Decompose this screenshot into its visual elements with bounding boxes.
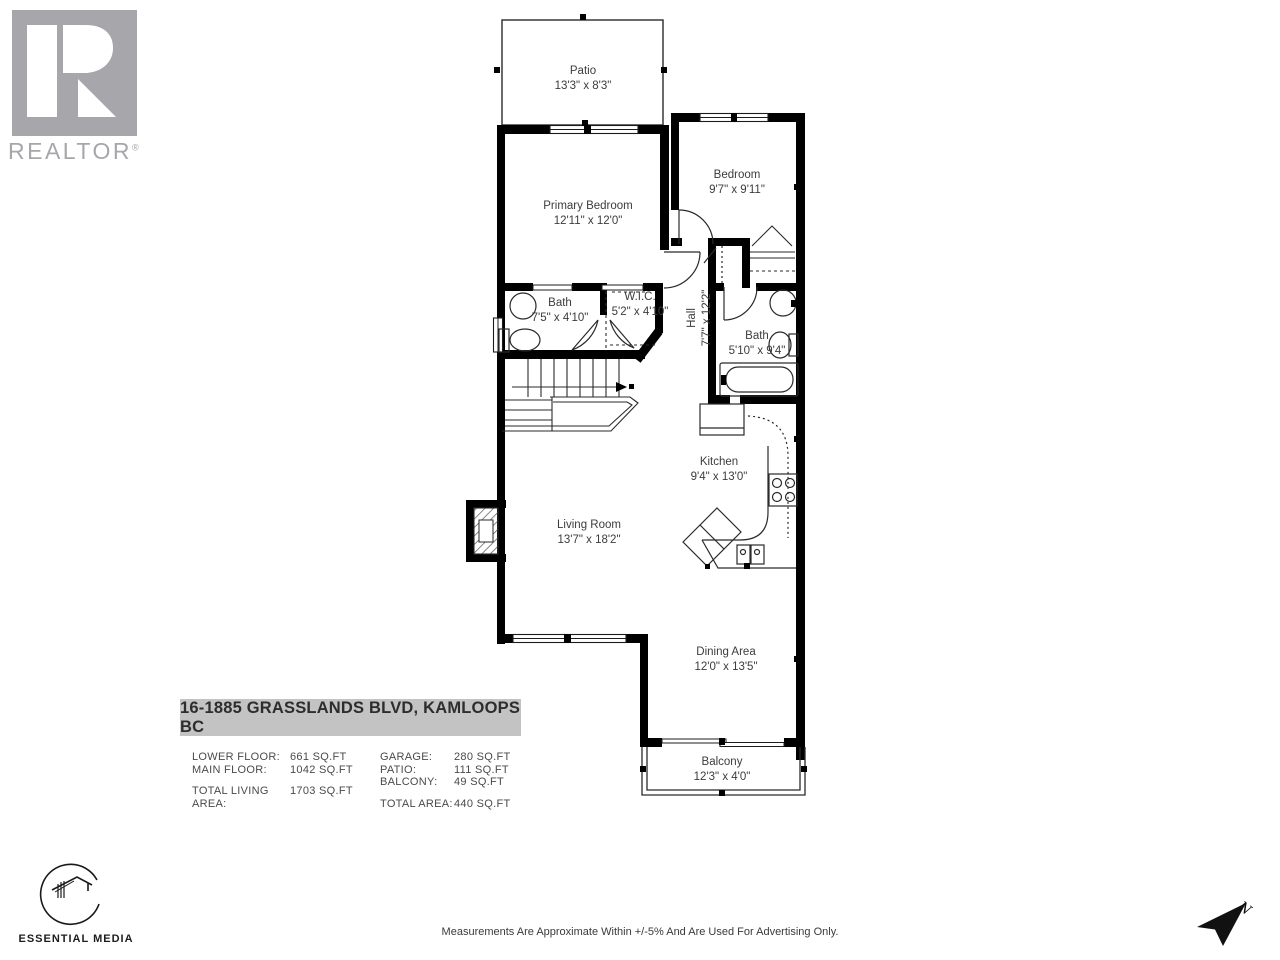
disclaimer-text: Measurements Are Approximate Within +/-5…: [0, 926, 1280, 938]
floorplan-drawing: N: [0, 0, 1280, 960]
room-label-wic: W.I.C. 5'2" x 4'10": [612, 290, 669, 320]
area-stats-right: GARAGE: 280 SQ.FT PATIO: 111 SQ.FT BALCO…: [380, 751, 511, 810]
room-label-primary-bedroom: Primary Bedroom 12'11" x 12'0": [543, 199, 632, 229]
realtor-wordmark: REALTOR®: [8, 138, 139, 165]
fireplace-icon: [474, 508, 498, 554]
fridge-icon: [700, 404, 744, 435]
floorplan-page: N Patio 13'3" x 8'3" Primary Bedroom 12'…: [0, 0, 1280, 960]
room-label-living-room: Living Room 13'7" x 18'2": [557, 518, 621, 548]
kitchen-fixtures: [683, 404, 797, 569]
north-arrow-icon: N: [1197, 898, 1255, 946]
room-label-bath-main: Bath 7'5" x 4'10": [532, 296, 589, 326]
address-banner: 16-1885 GRASSLANDS BLVD, KAMLOOPS BC: [180, 699, 521, 736]
area-stats-left: LOWER FLOOR: 661 SQ.FT MAIN FLOOR: 1042 …: [192, 751, 353, 810]
stat-row: GARAGE: 280 SQ.FT: [380, 751, 511, 764]
stat-row-total: TOTAL AREA: 440 SQ.FT: [380, 798, 511, 811]
stat-row-total: TOTAL LIVING AREA: 1703 SQ.FT: [192, 785, 353, 810]
room-label-kitchen: Kitchen 9'4" x 13'0": [691, 455, 748, 485]
room-label-patio: Patio 13'3" x 8'3": [555, 64, 612, 94]
stat-row: LOWER FLOOR: 661 SQ.FT: [192, 751, 353, 764]
stat-row: BALCONY: 49 SQ.FT: [380, 776, 511, 789]
bedroom-closet: [750, 226, 795, 271]
stairs: [502, 359, 638, 431]
room-label-bath-second: Bath 5'10" x 9'4": [729, 329, 786, 359]
room-label-hall: Hall 7'7" x 12'2": [685, 290, 715, 347]
address-text: 16-1885 GRASSLANDS BLVD, KAMLOOPS BC: [180, 699, 521, 737]
realtor-logo-icon: [12, 10, 137, 136]
room-label-balcony: Balcony 12'3" x 4'0": [694, 755, 751, 785]
stat-row: MAIN FLOOR: 1042 SQ.FT: [192, 764, 353, 777]
registered-mark: ®: [132, 142, 139, 152]
essential-media-logo-icon: [41, 864, 99, 924]
stat-row: PATIO: 111 SQ.FT: [380, 764, 511, 777]
room-label-dining-area: Dining Area 12'0" x 13'5": [694, 645, 757, 675]
room-label-bedroom: Bedroom 9'7" x 9'11": [709, 168, 765, 198]
